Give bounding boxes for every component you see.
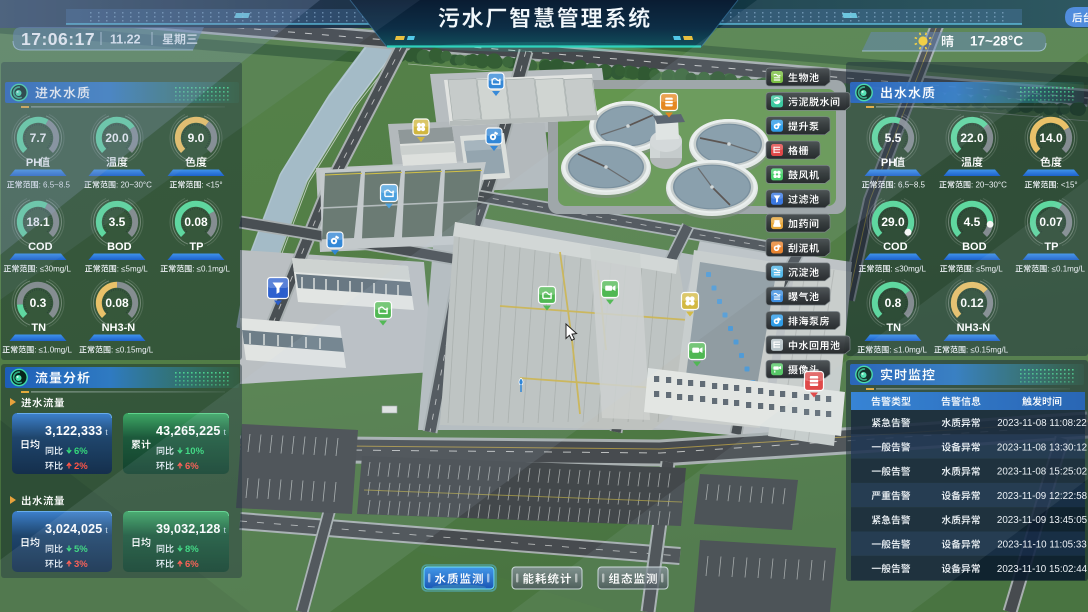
svg-text:2023-11-10 11:05:33: 2023-11-10 11:05:33 xyxy=(997,540,1087,551)
svg-text:: ≤1.0mg/L: : ≤1.0mg/L xyxy=(34,346,72,355)
svg-text:: <15°: : <15° xyxy=(1056,181,1077,190)
svg-text:0.8: 0.8 xyxy=(885,296,902,310)
svg-text:0.3: 0.3 xyxy=(30,296,47,310)
svg-text:14.0: 14.0 xyxy=(1039,131,1063,145)
svg-text:BOD: BOD xyxy=(107,241,132,253)
svg-text:: 20~30°C: : 20~30°C xyxy=(971,181,1007,190)
svg-text:: <15°: : <15° xyxy=(201,181,222,190)
svg-text:2%: 2% xyxy=(74,461,88,472)
svg-text:BOD: BOD xyxy=(962,241,987,253)
svg-text:6%: 6% xyxy=(74,446,88,457)
svg-text:: ≤0.1mg/L: : ≤0.1mg/L xyxy=(192,265,230,274)
svg-text:3,122,333: 3,122,333 xyxy=(45,424,102,438)
svg-text:NH3-N: NH3-N xyxy=(102,322,136,334)
svg-text:COD: COD xyxy=(883,241,908,253)
svg-text:: ≤0.15mg/L: : ≤0.15mg/L xyxy=(111,346,154,355)
svg-text:0.08: 0.08 xyxy=(184,215,208,229)
svg-text:4.5: 4.5 xyxy=(964,215,981,229)
svg-text:: ≤30mg/L: : ≤30mg/L xyxy=(890,265,926,274)
svg-text:TP: TP xyxy=(189,241,203,253)
svg-text:TN: TN xyxy=(31,322,46,334)
svg-text:0.08: 0.08 xyxy=(105,296,129,310)
svg-text:: ≤5mg/L: : ≤5mg/L xyxy=(117,265,149,274)
svg-text:2023-11-10 15:02:44: 2023-11-10 15:02:44 xyxy=(997,564,1088,575)
svg-text:29.0: 29.0 xyxy=(881,215,905,229)
